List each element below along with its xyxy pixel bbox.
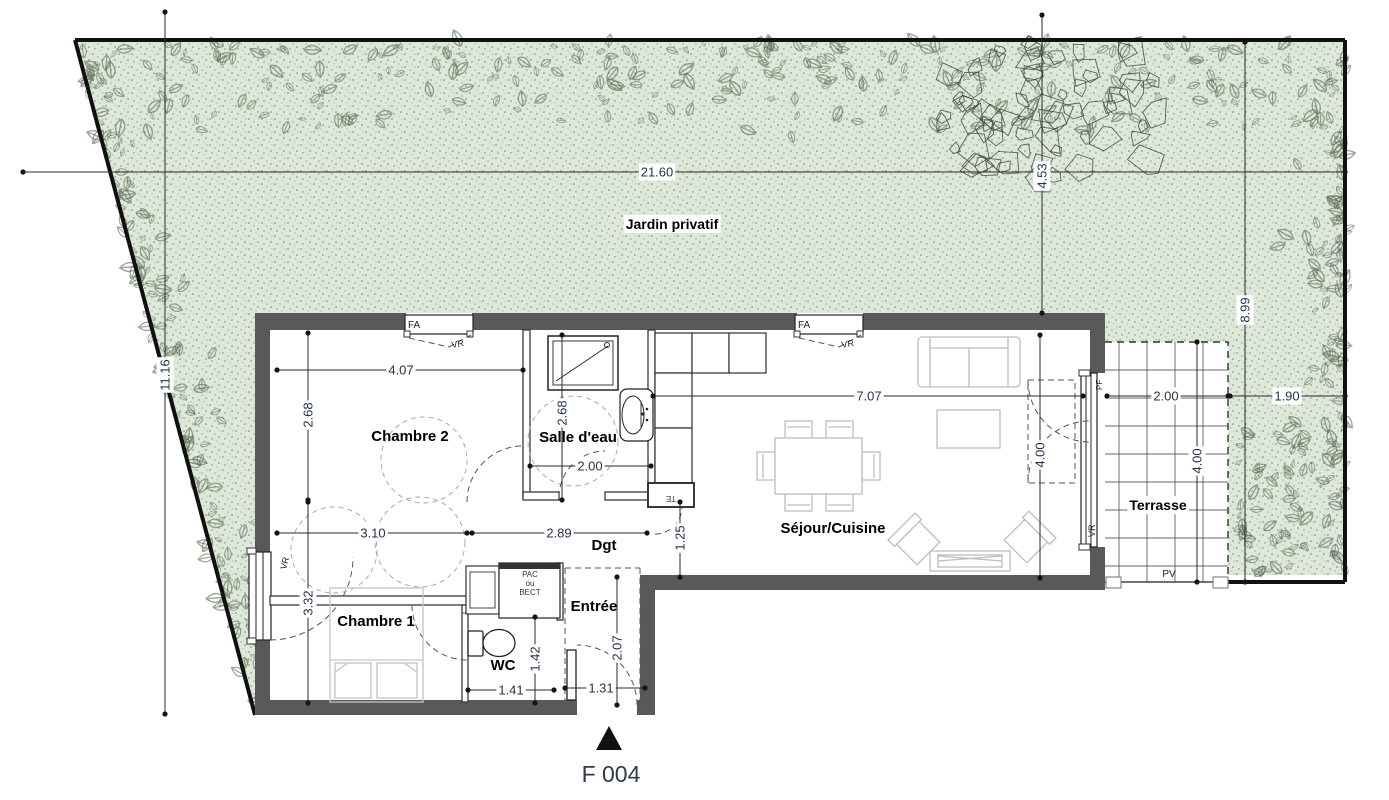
wall-bathroom-bottom-left — [523, 492, 559, 500]
dim-site-top-right: 4.53 — [1035, 163, 1050, 188]
wall-segment — [640, 575, 655, 715]
dim-endpoint-dot — [464, 530, 469, 535]
dim-endpoint-dot — [559, 332, 564, 337]
dim-endpoint-dot — [677, 499, 682, 504]
terrace — [1105, 342, 1228, 588]
dim-living-h: 4.00 — [1033, 442, 1048, 467]
wall-segment — [863, 313, 1105, 330]
dim-endpoint-dot — [551, 687, 556, 692]
wall-segment — [640, 575, 1105, 590]
wall-segment — [255, 313, 270, 553]
dim-entry-h: 2.07 — [610, 635, 625, 660]
pac-label-line3: BECT — [519, 588, 540, 597]
tv-bench — [930, 551, 1010, 571]
washbasin — [620, 389, 653, 441]
dim-endpoint-dot — [274, 530, 279, 535]
entrance-arrow — [596, 726, 622, 750]
dim-wc-h: 1.42 — [528, 646, 543, 671]
dim-endpoint-dot — [650, 393, 655, 398]
pv-tag: PV — [1162, 569, 1176, 580]
dim-bedroom1-w: 3.10 — [360, 526, 385, 541]
dim-kitchen-pass: 1.25 — [673, 525, 688, 550]
dim-endpoint-dot — [644, 530, 649, 535]
dim-endpoint-dot — [1242, 39, 1247, 44]
dim-endpoint-dot — [677, 574, 682, 579]
label-hallway: Dgt — [592, 537, 617, 554]
shutter-tag-vr: VR — [1087, 524, 1097, 537]
dim-endpoint-dot — [1039, 12, 1044, 17]
dim-endpoint-dot — [614, 574, 619, 579]
terrace-floor — [1105, 342, 1228, 582]
label-bedroom1: Chambre 1 — [337, 613, 415, 630]
doorwindow-tag-pf: PF — [1095, 380, 1104, 390]
wall-segment — [1090, 313, 1105, 373]
label-terrace: Terrasse — [1129, 497, 1187, 513]
window-tag-fa: FA — [408, 320, 421, 331]
floor-plan-page: FA VR FA VR VR PF VR — [0, 0, 1389, 800]
dim-endpoint-dot — [305, 700, 310, 705]
wall-bathroom-left — [523, 330, 530, 498]
floor-plan: FA VR FA VR VR PF VR — [0, 0, 1389, 800]
pac-label-line2: ou — [526, 579, 535, 588]
wall-bathroom-bottom-right — [605, 492, 649, 500]
wall-segment — [472, 313, 797, 330]
dim-bedroom2-w: 4.07 — [388, 363, 413, 378]
dim-terrace-w: 2.00 — [1153, 389, 1178, 404]
toilet-bowl — [483, 630, 515, 657]
pac-label-line1: PAC — [522, 570, 538, 579]
dim-terrace-h: 4.00 — [1190, 448, 1205, 473]
wall-segment — [255, 313, 406, 330]
dim-endpoint-dot — [1342, 169, 1347, 174]
dim-endpoint-dot — [559, 497, 564, 502]
dim-endpoint-dot — [1225, 393, 1230, 398]
label-living: Séjour/Cuisine — [780, 520, 885, 537]
label-bedroom2: Chambre 2 — [371, 428, 449, 445]
dim-endpoint-dot — [162, 711, 167, 716]
dim-wc-w: 1.41 — [498, 683, 523, 698]
wall-wc-left — [462, 605, 468, 702]
dim-entry-w: 1.31 — [588, 681, 613, 696]
dim-bedroom2-h: 2.68 — [301, 402, 316, 427]
sofa — [918, 337, 1020, 387]
unit-number: F 004 — [582, 761, 641, 787]
dim-site-width: 21.60 — [641, 165, 674, 180]
electrical-box: TE — [648, 483, 694, 507]
dim-endpoint-dot — [614, 702, 619, 707]
dim-endpoint-dot — [20, 169, 25, 174]
toilet-tank — [468, 631, 483, 656]
terrace-footing-left — [1106, 577, 1121, 588]
dim-site-right: 8.99 — [1238, 297, 1253, 322]
label-bathroom: Salle d'eau — [539, 429, 617, 446]
dim-endpoint-dot — [1037, 332, 1042, 337]
label-garden: Jardin privatif — [626, 216, 719, 232]
dim-endpoint-dot — [305, 330, 310, 335]
dim-endpoint-dot — [532, 700, 537, 705]
dim-endpoint-dot — [305, 499, 310, 504]
dim-endpoint-dot — [520, 367, 525, 372]
dim-endpoint-dot — [532, 614, 537, 619]
dim-endpoint-dot — [1104, 393, 1109, 398]
dim-endpoint-dot — [1342, 393, 1347, 398]
entry-door-leaf — [567, 650, 576, 700]
dim-endpoint-dot — [648, 463, 653, 468]
dim-endpoint-dot — [642, 685, 647, 690]
dim-bath-h: 2.68 — [555, 400, 570, 425]
dim-site-left: 11.16 — [158, 359, 173, 391]
dim-endpoint-dot — [1039, 310, 1044, 315]
dim-endpoint-dot — [1242, 579, 1247, 584]
dim-living-w: 7.07 — [856, 389, 881, 404]
terrace-footing-right — [1213, 577, 1228, 588]
dining-table — [775, 438, 862, 494]
dim-endpoint-dot — [1080, 393, 1085, 398]
dim-hall-w: 2.89 — [546, 526, 571, 541]
dim-garden-right: 1.90 — [1274, 389, 1299, 404]
dim-endpoint-dot — [162, 9, 167, 14]
wc-cabinet — [466, 566, 499, 614]
window-tag-fa: FA — [798, 320, 811, 331]
dim-endpoint-dot — [1037, 575, 1042, 580]
elec-tag-te: TE — [666, 494, 676, 503]
dim-endpoint-dot — [527, 463, 532, 468]
dim-bath-w: 2.00 — [577, 459, 602, 474]
label-wc: WC — [491, 657, 516, 674]
dim-endpoint-dot — [465, 687, 470, 692]
dim-endpoint-dot — [1194, 339, 1199, 344]
dim-endpoint-dot — [562, 685, 567, 690]
dim-endpoint-dot — [274, 367, 279, 372]
dim-bedroom1-h: 3.32 — [301, 590, 316, 615]
coffee-table — [937, 410, 1000, 448]
pac-closet: PAC ou BECT — [499, 563, 560, 618]
dim-endpoint-dot — [469, 530, 474, 535]
dim-endpoint-dot — [1194, 579, 1199, 584]
label-entry: Entrée — [571, 598, 618, 615]
